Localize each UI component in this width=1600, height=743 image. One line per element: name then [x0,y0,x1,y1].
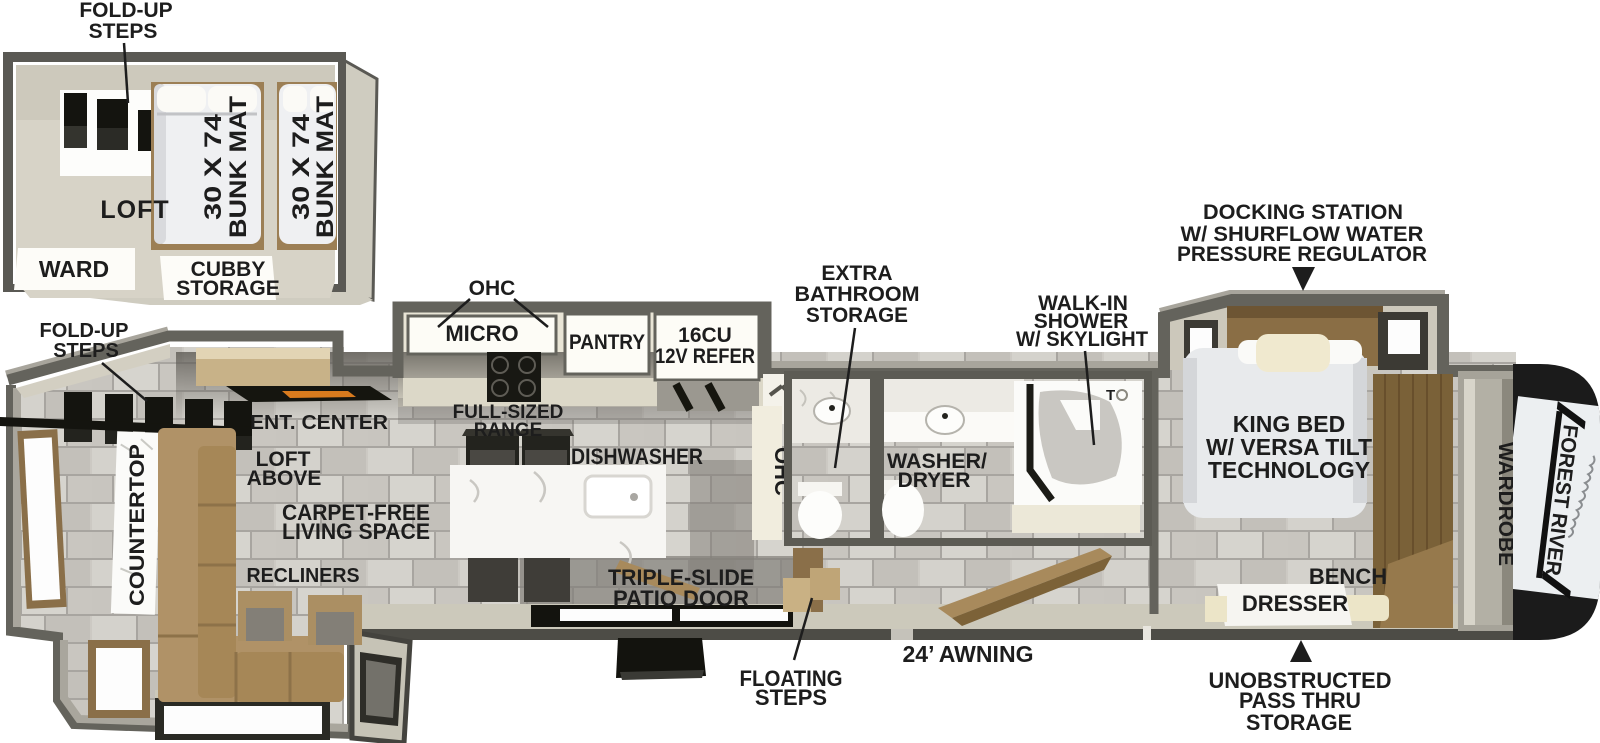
svg-text:ENT. CENTER: ENT. CENTER [250,412,389,434]
svg-text:BUNK MAT: BUNK MAT [225,96,252,238]
svg-text:FOLD-UP: FOLD-UP [79,0,172,22]
svg-text:T: T [1106,387,1115,404]
svg-text:STEPS: STEPS [755,685,827,710]
svg-text:DRYER: DRYER [898,469,971,492]
svg-text:FOLD-UP: FOLD-UP [40,320,129,342]
svg-text:BATHROOM: BATHROOM [795,283,920,306]
svg-text:STORAGE: STORAGE [1246,710,1352,735]
svg-text:STORAGE: STORAGE [176,277,279,300]
svg-text:RECLINERS: RECLINERS [247,565,360,587]
svg-text:BENCH: BENCH [1309,564,1387,589]
svg-text:OHC: OHC [469,277,516,300]
svg-text:COUNTERTOP: COUNTERTOP [126,444,149,606]
svg-text:12V REFER: 12V REFER [655,345,755,368]
svg-text:RANGE: RANGE [474,420,543,441]
svg-text:STEPS: STEPS [89,20,158,43]
svg-text:DISHWASHER: DISHWASHER [571,444,703,469]
svg-text:ABOVE: ABOVE [247,467,322,490]
svg-text:LIVING SPACE: LIVING SPACE [282,519,430,544]
svg-text:LOFT: LOFT [100,196,169,224]
svg-text:W/ SKYLIGHT: W/ SKYLIGHT [1016,328,1148,351]
svg-text:PRESSURE REGULATOR: PRESSURE REGULATOR [1177,243,1427,266]
svg-text:TECHNOLOGY: TECHNOLOGY [1208,457,1370,483]
svg-text:30 X 74: 30 X 74 [288,113,315,220]
svg-text:EXTRA: EXTRA [821,262,892,285]
svg-text:30 X 74: 30 X 74 [200,113,227,220]
svg-text:PANTRY: PANTRY [569,331,645,354]
svg-text:WARD: WARD [39,256,109,282]
svg-text:BUNK MAT: BUNK MAT [312,96,339,238]
svg-text:PATIO DOOR: PATIO DOOR [613,586,749,611]
svg-text:MICRO: MICRO [445,321,518,346]
svg-text:DOCKING STATION: DOCKING STATION [1203,201,1403,224]
svg-text:DRESSER: DRESSER [1242,591,1348,616]
svg-text:STORAGE: STORAGE [806,304,908,327]
svg-text:24’ AWNING: 24’ AWNING [903,641,1034,667]
svg-text:16CU: 16CU [678,324,732,347]
svg-text:STEPS: STEPS [53,340,119,362]
